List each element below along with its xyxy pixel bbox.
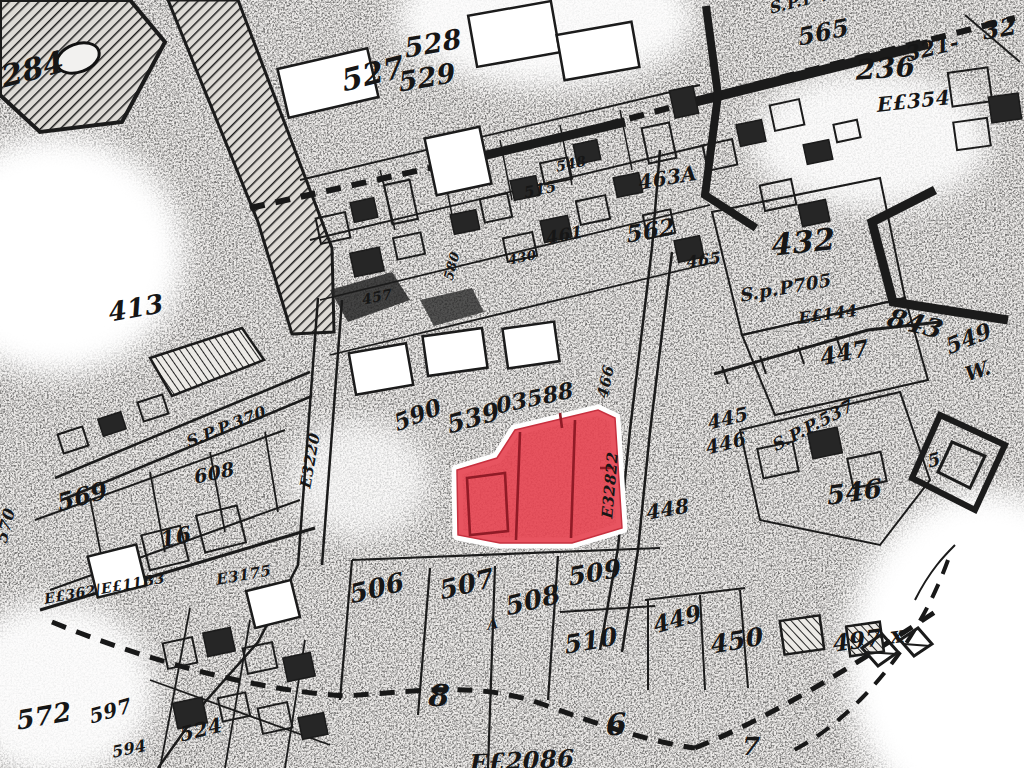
map-label: 432 [767, 221, 836, 263]
map-label: 8 [426, 678, 450, 713]
cadastral-map-svg: 284527528529S.P.P 130565321-236E£3543246… [0, 0, 1024, 768]
map-label: 236 [852, 50, 916, 87]
map-label: 32 [978, 11, 1019, 46]
map-label: 7 [740, 732, 760, 761]
map-viewport[interactable]: 284527528529S.P.P 130565321-236E£3543246… [0, 0, 1024, 768]
